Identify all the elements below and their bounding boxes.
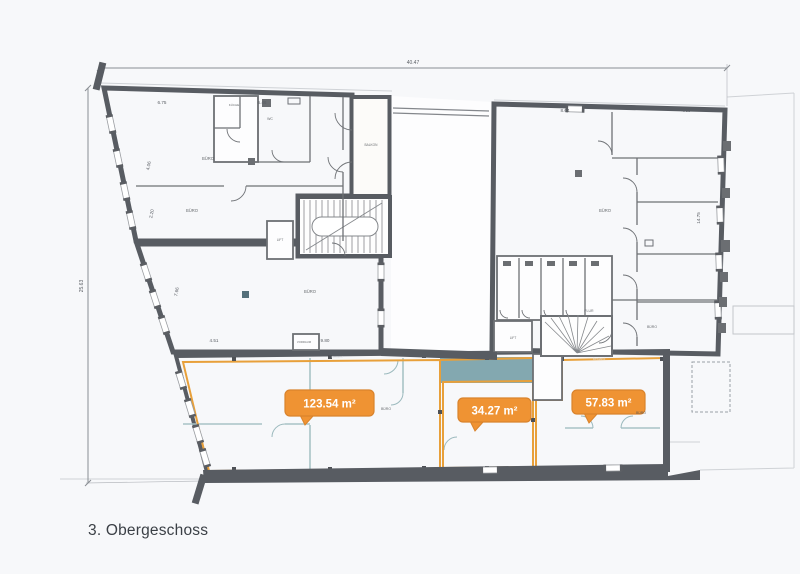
dim-total-width: 40.47 bbox=[407, 60, 420, 66]
courtyard bbox=[391, 96, 492, 350]
floor-plan-page: 40.47 25.63 bbox=[0, 0, 800, 574]
area-badge-left[interactable]: 123.54 m² bbox=[285, 390, 374, 425]
dim-label: 4.51 bbox=[210, 338, 219, 343]
room-label: VORRAUM bbox=[297, 340, 312, 344]
stairwell-left bbox=[298, 197, 390, 256]
dim-label: 4.06 bbox=[145, 160, 152, 170]
room-label: BALKON bbox=[365, 143, 379, 147]
floor-plan-drawing: 40.47 25.63 bbox=[0, 0, 800, 574]
area-badge-right[interactable]: 57.83 m² bbox=[572, 390, 645, 423]
room-label: FLUR bbox=[584, 309, 594, 313]
dim-total-side: 25.63 bbox=[79, 280, 85, 293]
dim-label: 2.20 bbox=[148, 208, 155, 218]
terrace-outline bbox=[692, 362, 730, 412]
room-label: KÜCHE bbox=[229, 103, 240, 107]
room-label: BÜRO bbox=[636, 411, 646, 415]
dim-label: 14.75 bbox=[696, 212, 701, 224]
room-label: LIFT bbox=[510, 336, 517, 340]
room-label: BÜRO bbox=[381, 407, 391, 411]
dim-label: 4.60 bbox=[682, 108, 691, 113]
dim-label: 6.75 bbox=[158, 100, 167, 105]
room-label: BÜRO bbox=[304, 289, 317, 294]
zone-office-teal bbox=[137, 244, 381, 352]
dim-label: 7.66 bbox=[173, 286, 180, 296]
area-badge-left-label: 123.54 m² bbox=[303, 399, 356, 411]
area-badge-middle-label: 34.27 m² bbox=[471, 406, 517, 418]
room-label: WC bbox=[267, 117, 273, 121]
area-badge-right-label: 57.83 m² bbox=[585, 398, 631, 410]
floor-title: 3. Obergeschoss bbox=[88, 522, 208, 540]
dim-label: 8.64 bbox=[561, 108, 570, 113]
area-badge-middle[interactable]: 34.27 m² bbox=[458, 398, 531, 431]
dim-label: 6.46 bbox=[258, 100, 267, 105]
entry-notch bbox=[533, 354, 562, 400]
wc-cluster-right bbox=[497, 256, 612, 320]
room-label: BÜRO bbox=[202, 156, 215, 161]
dimension-left: 25.63 bbox=[79, 85, 203, 486]
room-label: BÜRO bbox=[647, 325, 657, 329]
room-label: Bestand bbox=[331, 355, 342, 359]
dim-label: 9.80 bbox=[321, 338, 330, 343]
room-label: LIFT bbox=[277, 238, 284, 242]
room-label: Bestand bbox=[593, 357, 606, 361]
room-label: BÜRO bbox=[599, 208, 612, 213]
right-building bbox=[492, 100, 725, 356]
stairwell-right bbox=[541, 315, 612, 356]
room-label: BÜRO bbox=[186, 208, 199, 213]
